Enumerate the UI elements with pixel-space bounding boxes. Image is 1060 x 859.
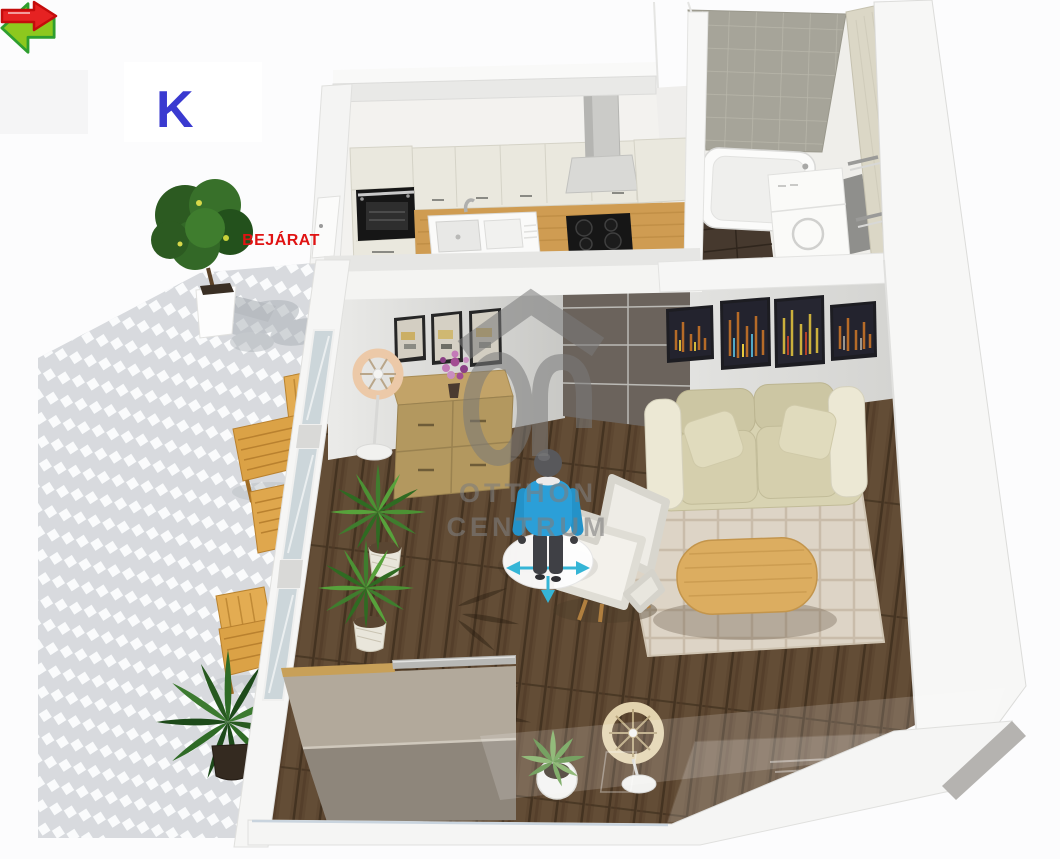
oven [356, 187, 416, 241]
watermark-line2: CENTRUM [408, 510, 648, 544]
washing-machine [768, 168, 850, 266]
entrance-arrow-shape [2, 2, 56, 30]
kitchen-right-cabinet [634, 138, 690, 203]
door-frame-bar [296, 425, 322, 448]
floorplan-screenshot: K BEJÁRAT OTTHON CENTRUM [0, 0, 1060, 859]
sofa-pillow [777, 403, 838, 461]
compass-direction-label: K [156, 80, 194, 140]
sofa [644, 381, 868, 512]
watermark-line1: OTTHON [408, 476, 648, 510]
entrance-label: BEJÁRAT [236, 232, 326, 250]
door-handle [319, 224, 323, 228]
coffee-table [676, 537, 818, 616]
cooktop [566, 213, 633, 255]
watermark-text: OTTHON CENTRUM [408, 476, 648, 544]
tree-planter [196, 283, 236, 338]
bathroom-far-tile-wall [688, 10, 846, 152]
background-artifact [0, 70, 88, 134]
door-frame-bar [277, 560, 303, 588]
entrance-arrow-icon [0, 0, 58, 34]
sofa-arm [828, 386, 868, 497]
